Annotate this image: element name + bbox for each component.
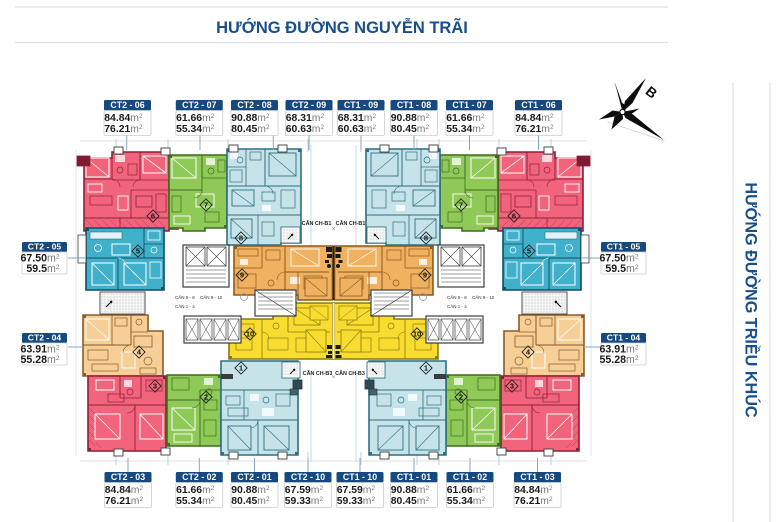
svg-text:67.59m2: 67.59m2 [337, 485, 376, 496]
svg-text:CT1 - 05: CT1 - 05 [607, 242, 641, 252]
svg-text:CT1 - 06: CT1 - 06 [521, 100, 555, 110]
svg-text:CT2 - 03: CT2 - 03 [111, 472, 145, 482]
svg-text:CĂN 9 - 10: CĂN 9 - 10 [472, 294, 495, 300]
svg-text:CT1 - 08: CT1 - 08 [397, 100, 431, 110]
svg-text:80.45m2: 80.45m2 [231, 124, 270, 135]
svg-text:61.66m2: 61.66m2 [446, 113, 485, 124]
svg-text:CT2 - 10: CT2 - 10 [291, 472, 325, 482]
svg-text:76.21m2: 76.21m2 [514, 496, 553, 507]
svg-text:10: 10 [413, 330, 421, 339]
svg-text:9: 9 [423, 271, 427, 280]
svg-text:59.33m2: 59.33m2 [337, 496, 376, 507]
svg-text:59.5m2: 59.5m2 [605, 263, 638, 275]
svg-text:5: 5 [527, 247, 531, 256]
svg-text:CT1 - 10: CT1 - 10 [343, 472, 377, 482]
svg-text:76.21m2: 76.21m2 [515, 124, 554, 135]
svg-text:CT1 - 09: CT1 - 09 [344, 100, 378, 110]
svg-text:CT2 - 01: CT2 - 01 [237, 472, 271, 482]
svg-text:55.34m2: 55.34m2 [446, 124, 485, 135]
svg-text:61.66m2: 61.66m2 [176, 485, 215, 496]
svg-text:55.34m2: 55.34m2 [176, 124, 215, 135]
svg-text:59.5m2: 59.5m2 [26, 263, 59, 275]
svg-text:84.84m2: 84.84m2 [105, 485, 144, 496]
svg-text:CĂN CH-B3: CĂN CH-B3 [303, 370, 333, 377]
svg-text:8: 8 [424, 234, 428, 243]
svg-text:68.31m2: 68.31m2 [338, 113, 377, 124]
svg-text:CT2 - 06: CT2 - 06 [110, 100, 144, 110]
svg-text:CT1 - 04: CT1 - 04 [607, 333, 641, 343]
svg-text:1: 1 [239, 364, 243, 373]
svg-text:CĂN CH-B1: CĂN CH-B1 [302, 220, 332, 227]
svg-text:CĂN 9 - 10: CĂN 9 - 10 [200, 294, 223, 300]
svg-text:80.45m2: 80.45m2 [391, 496, 430, 507]
svg-text:HƯỚNG ĐƯỜNG TRIỀU KHÚC: HƯỚNG ĐƯỜNG TRIỀU KHÚC [742, 182, 761, 418]
svg-text:×: × [332, 374, 336, 381]
svg-text:10: 10 [246, 330, 254, 339]
svg-text:80.45m2: 80.45m2 [391, 124, 430, 135]
svg-text:6: 6 [151, 212, 155, 221]
svg-text:55.28m2: 55.28m2 [20, 354, 59, 366]
svg-text:HƯỚNG ĐƯỜNG NGUYỄN TRÃI: HƯỚNG ĐƯỜNG NGUYỄN TRÃI [216, 17, 468, 37]
svg-text:90.88m2: 90.88m2 [231, 485, 270, 496]
svg-text:1: 1 [424, 364, 428, 373]
svg-text:3: 3 [153, 382, 157, 391]
svg-text:9: 9 [240, 271, 244, 280]
svg-text:×: × [331, 226, 335, 233]
svg-text:55.34m2: 55.34m2 [447, 496, 486, 507]
svg-text:CĂN 1 - 4: CĂN 1 - 4 [447, 303, 467, 309]
svg-text:59.33m2: 59.33m2 [285, 496, 324, 507]
svg-text:90.88m2: 90.88m2 [391, 485, 430, 496]
svg-text:CĂN CH-B1: CĂN CH-B1 [336, 220, 366, 227]
svg-text:2: 2 [204, 393, 208, 402]
svg-text:CT1 - 07: CT1 - 07 [452, 100, 486, 110]
svg-text:CĂN 5 - 8: CĂN 5 - 8 [447, 294, 467, 300]
svg-text:CT2 - 02: CT2 - 02 [182, 472, 216, 482]
svg-text:60.63m2: 60.63m2 [338, 124, 377, 135]
svg-text:7: 7 [459, 201, 463, 210]
svg-text:84.84m2: 84.84m2 [104, 113, 143, 124]
svg-text:61.66m2: 61.66m2 [447, 485, 486, 496]
svg-text:80.45m2: 80.45m2 [231, 496, 270, 507]
svg-text:CT2 - 05: CT2 - 05 [28, 242, 62, 252]
svg-text:61.66m2: 61.66m2 [176, 113, 215, 124]
svg-text:CT1 - 02: CT1 - 02 [453, 472, 487, 482]
svg-text:55.28m2: 55.28m2 [599, 354, 638, 366]
svg-text:67.59m2: 67.59m2 [285, 485, 324, 496]
svg-text:CT2 - 07: CT2 - 07 [182, 100, 216, 110]
svg-text:CT2 - 04: CT2 - 04 [28, 333, 62, 343]
svg-text:5: 5 [136, 247, 140, 256]
svg-text:7: 7 [204, 201, 208, 210]
svg-text:3: 3 [510, 382, 514, 391]
svg-text:6: 6 [512, 212, 516, 221]
svg-text:84.84m2: 84.84m2 [514, 485, 553, 496]
svg-text:55.34m2: 55.34m2 [176, 496, 215, 507]
svg-text:CT2 - 09: CT2 - 09 [292, 100, 326, 110]
svg-text:90.88m2: 90.88m2 [391, 113, 430, 124]
svg-text:60.63m2: 60.63m2 [286, 124, 325, 135]
svg-text:84.84m2: 84.84m2 [515, 113, 554, 124]
svg-text:CĂN 5 - 8: CĂN 5 - 8 [175, 294, 195, 300]
svg-text:CĂN CH-B3: CĂN CH-B3 [335, 370, 365, 377]
svg-text:76.21m2: 76.21m2 [104, 124, 143, 135]
svg-text:CT1 - 03: CT1 - 03 [520, 472, 554, 482]
svg-text:CT1 - 01: CT1 - 01 [397, 472, 431, 482]
svg-text:CĂN 1 - 4: CĂN 1 - 4 [175, 303, 195, 309]
svg-text:76.21m2: 76.21m2 [105, 496, 144, 507]
svg-text:8: 8 [239, 234, 243, 243]
svg-text:CT2 - 08: CT2 - 08 [237, 100, 271, 110]
svg-text:68.31m2: 68.31m2 [286, 113, 325, 124]
svg-text:90.88m2: 90.88m2 [231, 113, 270, 124]
svg-text:2: 2 [459, 393, 463, 402]
